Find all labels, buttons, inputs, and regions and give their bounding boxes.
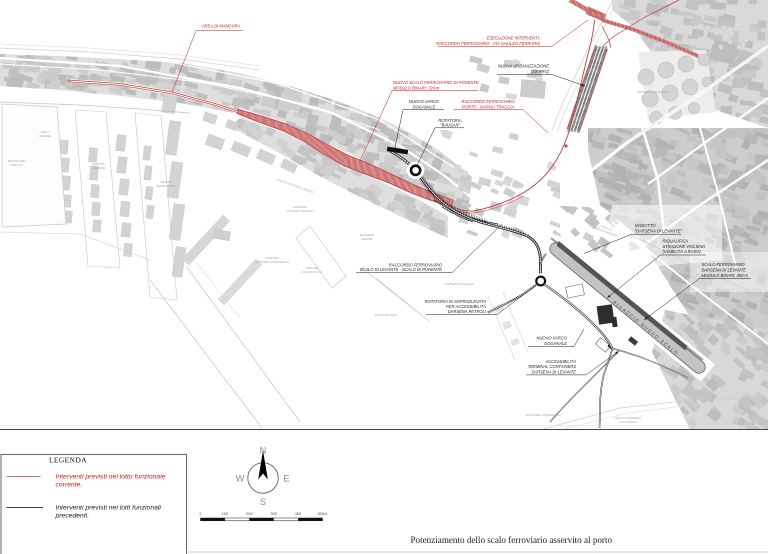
svg-text:VITTORIO VENETO: VITTORIO VENETO (286, 209, 314, 213)
svg-text:NUOVO VARCO: NUOVO VARCO (537, 335, 568, 340)
svg-text:NUOVO VARCO: NUOVO VARCO (409, 99, 440, 104)
svg-text:200: 200 (246, 512, 252, 516)
svg-text:VITTORIO EMANUELE II: VITTORIO EMANUELE II (255, 260, 289, 264)
svg-text:SCALO DI LEVANTE - SCALO DI PO: SCALO DI LEVANTE - SCALO DI PONENTE (360, 267, 443, 272)
svg-text:NUOVO SCALO FERROVIARIO DI PON: NUOVO SCALO FERROVIARIO DI PONENTE (393, 80, 479, 85)
svg-text:MOLO BAUSAN: MOLO BAUSAN (375, 313, 398, 317)
svg-text:DOGANALE: DOGANALE (413, 104, 436, 109)
svg-text:E: E (283, 474, 289, 484)
svg-text:TERMINAL CONTAINERS: TERMINAL CONTAINERS (528, 364, 577, 369)
svg-text:MOLO DEL PROGRESSO: MOLO DEL PROGRESSO (525, 413, 561, 417)
svg-text:precedenti.: precedenti. (55, 513, 90, 520)
svg-text:(EX PRG): (EX PRG) (531, 69, 550, 74)
svg-text:400: 400 (295, 512, 301, 516)
svg-text:NUOVA URBANIZZAZIONE: NUOVA URBANIZZAZIONE (498, 64, 549, 69)
svg-text:100: 100 (222, 512, 228, 516)
svg-text:300: 300 (271, 512, 277, 516)
svg-text:MODULO BINARI: 450 m: MODULO BINARI: 450 m (702, 273, 749, 278)
svg-text:DI LEVANTE: DI LEVANTE (619, 420, 637, 424)
svg-text:LEGENDA: LEGENDA (49, 456, 87, 465)
svg-text:MODULO BINARI: 720 m: MODULO BINARI: 720 m (393, 86, 440, 91)
svg-text:DARSENA POLLENA: DARSENA POLLENA (444, 282, 473, 286)
svg-text:S: S (260, 497, 266, 507)
svg-text:VIADOTTO: VIADOTTO (635, 223, 657, 228)
svg-text:RIQUALIFICA: RIQUALIFICA (663, 239, 689, 244)
svg-text:(VIABILITÀ A RASO): (VIABILITÀ A RASO) (663, 249, 702, 254)
svg-text:PIANTO: PIANTO (11, 163, 23, 167)
svg-text:corrente.: corrente. (56, 482, 83, 489)
svg-text:CALATA VITTORIO VENETO: CALATA VITTORIO VENETO (276, 177, 315, 194)
svg-text:DARSENA PETROLI: DARSENA PETROLI (448, 309, 487, 314)
svg-text:RACCORDO FERROVIARIO - VIA GAL: RACCORDO FERROVIARIO - VIA GALILEO FERRA… (436, 41, 540, 46)
svg-text:W: W (236, 474, 245, 484)
svg-text:PORTO - NAPOLI TRACCIA: PORTO - NAPOLI TRACCIA (462, 104, 514, 109)
svg-text:DARSENA DI LEVANTE: DARSENA DI LEVANTE (702, 268, 747, 273)
svg-text:“DARSENA DI LEVANTE”: “DARSENA DI LEVANTE” (635, 229, 683, 234)
svg-text:Interventi previsti nei lotti: Interventi previsti nei lotti funzionali (56, 505, 162, 512)
svg-text:ESECUZIONE INTERVENTI:: ESECUZIONE INTERVENTI: (487, 36, 540, 41)
svg-text:GRANILI: GRANILI (361, 237, 373, 241)
svg-text:SCALO FERROVIARIO: SCALO FERROVIARIO (702, 262, 746, 267)
svg-text:FLAVIO GIOIA: FLAVIO GIOIA (302, 270, 322, 274)
svg-text:0: 0 (199, 512, 201, 516)
svg-text:CESARE: CESARE (39, 134, 52, 138)
svg-text:ARMSTRONG: ARMSTRONG (155, 184, 176, 188)
svg-text:AREA DI MANOVRA: AREA DI MANOVRA (201, 24, 240, 29)
svg-text:ACCESSIBILITÀ: ACCESSIBILITÀ (545, 359, 577, 364)
svg-text:RACCORDO FERROVIARIO: RACCORDO FERROVIARIO (461, 99, 515, 104)
svg-text:DARSENA DI LEVANTE: DARSENA DI LEVANTE (532, 370, 577, 375)
svg-text:500m: 500m (318, 512, 328, 516)
svg-text:“BAUSAN”: “BAUSAN” (440, 122, 460, 127)
svg-text:DEPOSITO PETROLIO: DEPOSITO PETROLIO (637, 90, 669, 94)
svg-text:DOGANALE: DOGANALE (544, 341, 567, 346)
svg-text:GRANDE: GRANDE (93, 166, 107, 170)
svg-text:N: N (260, 446, 267, 456)
svg-text:Potenziamento dello scalo ferr: Potenziamento dello scalo ferroviario as… (411, 535, 613, 545)
svg-text:Interventi previsti nel lotto: Interventi previsti nel lotto funzionale (56, 474, 166, 481)
